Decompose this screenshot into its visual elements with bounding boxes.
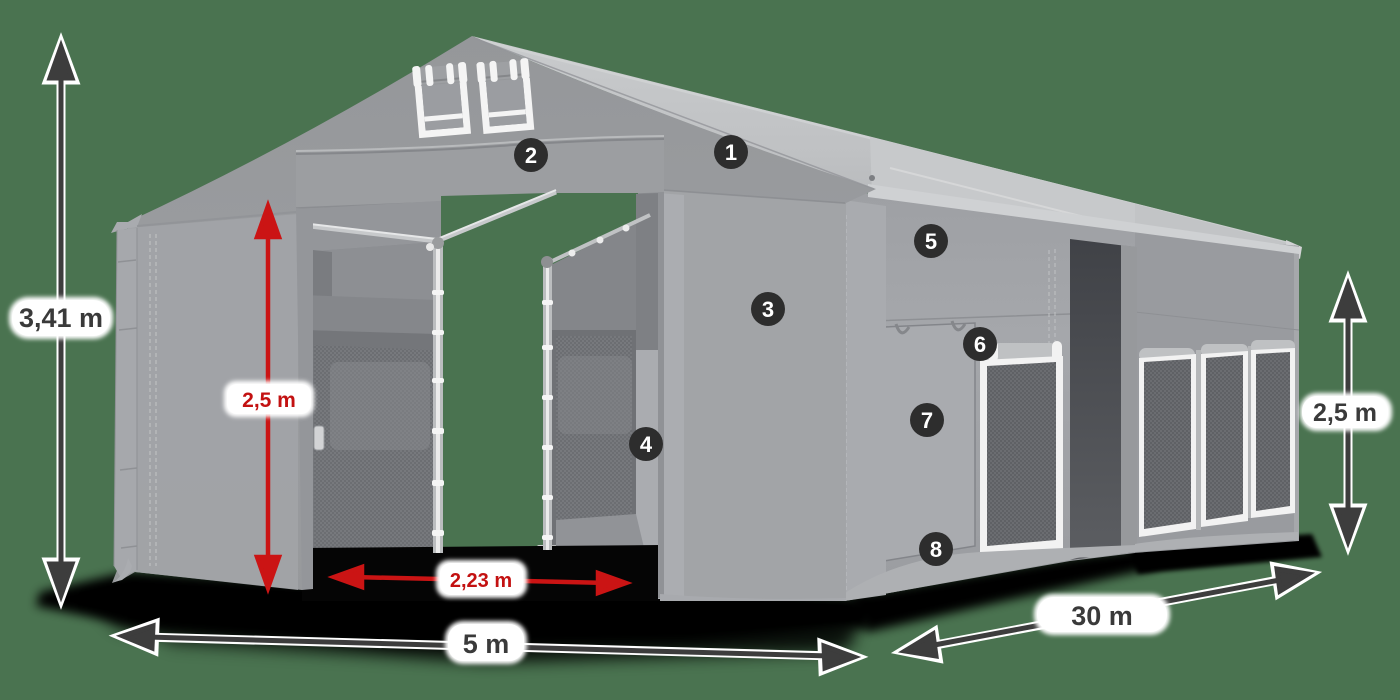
- svg-text:3,41 m: 3,41 m: [19, 303, 103, 333]
- svg-text:3: 3: [762, 297, 774, 322]
- svg-text:2: 2: [525, 143, 537, 168]
- svg-text:5: 5: [925, 229, 937, 254]
- svg-text:1: 1: [725, 140, 737, 165]
- svg-text:2,23 m: 2,23 m: [450, 570, 512, 592]
- svg-text:7: 7: [921, 408, 933, 433]
- svg-text:4: 4: [640, 432, 653, 457]
- svg-text:2,5 m: 2,5 m: [1313, 399, 1377, 427]
- svg-text:6: 6: [974, 332, 986, 357]
- svg-text:2,5 m: 2,5 m: [242, 389, 296, 412]
- svg-text:30 m: 30 m: [1071, 601, 1133, 631]
- svg-text:8: 8: [930, 537, 942, 562]
- svg-text:5 m: 5 m: [463, 629, 510, 659]
